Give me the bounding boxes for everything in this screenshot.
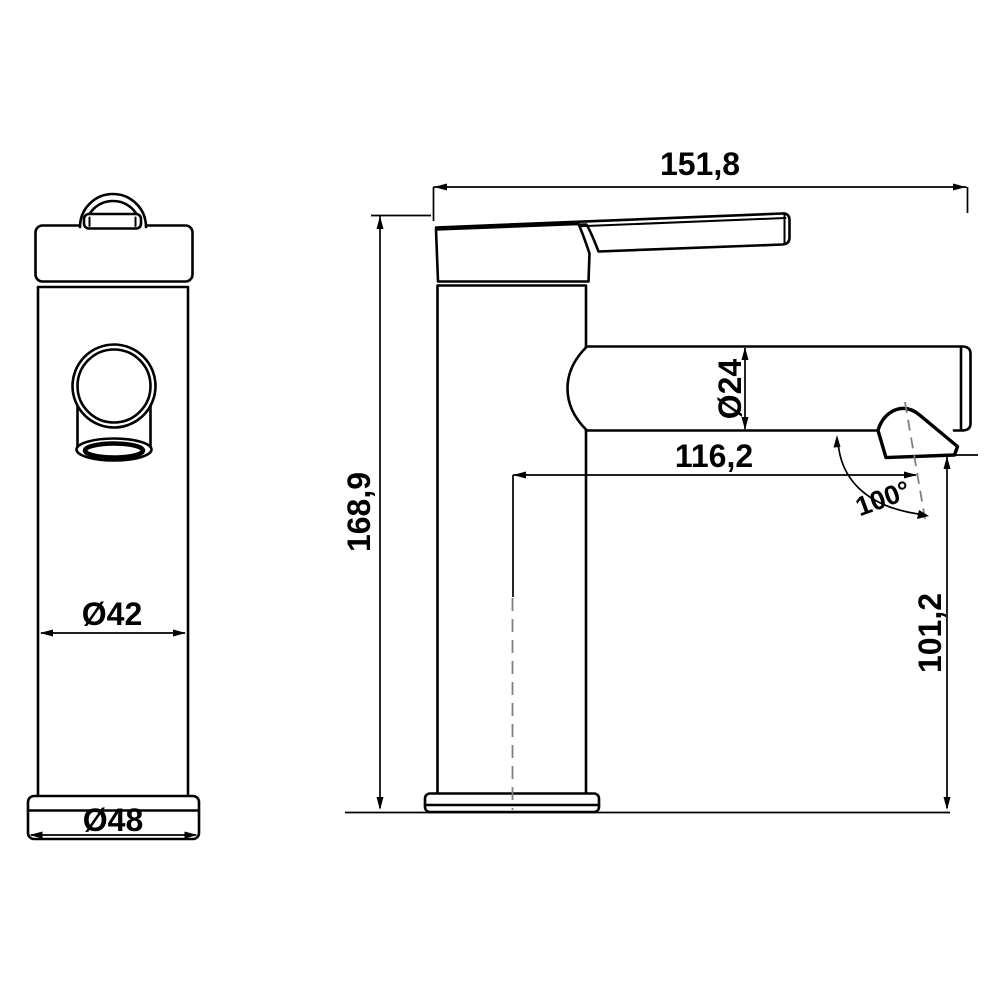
side-aerator bbox=[878, 408, 958, 457]
dim-base-diameter-label: Ø48 bbox=[83, 802, 143, 838]
front-view bbox=[28, 194, 199, 839]
dim-total-width-label: 151,8 bbox=[660, 146, 740, 182]
side-handle-cap bbox=[436, 224, 590, 282]
front-spout-outer-circle bbox=[73, 345, 156, 428]
front-handle-cap bbox=[36, 226, 193, 282]
side-spout-body-fillet bbox=[568, 348, 587, 430]
arrow-angle-arc-top bbox=[834, 435, 841, 448]
side-view bbox=[425, 213, 971, 812]
arrow-body-diameter-left bbox=[40, 630, 53, 637]
dim-total-height-line bbox=[371, 216, 431, 809]
arrow-spout-diameter-top bbox=[742, 347, 749, 360]
arrow-body-diameter-right bbox=[173, 630, 186, 637]
front-aerator-inner-ellipse bbox=[85, 444, 143, 458]
dim-spout-diameter-label: Ø24 bbox=[712, 359, 748, 420]
dim-outlet-angle-label: 100° bbox=[852, 475, 915, 522]
arrow-spout-reach-right bbox=[904, 472, 917, 479]
dim-body-diameter-label: Ø42 bbox=[82, 596, 142, 632]
arrow-outlet-height-top bbox=[944, 456, 951, 469]
arrow-outlet-height-bottom bbox=[944, 797, 951, 810]
arrow-total-width-left bbox=[434, 184, 447, 191]
arrow-spout-reach-left bbox=[513, 472, 526, 479]
dim-outlet-height-label: 101,2 bbox=[912, 593, 948, 673]
arrow-total-height-bottom bbox=[377, 797, 384, 810]
dim-total-height-label: 168,9 bbox=[341, 472, 377, 552]
arrow-total-width-right bbox=[953, 184, 966, 191]
technical-drawing-canvas: 151,8 168,9 Ø24 116,2 100° 101,2 Ø42 Ø48 bbox=[0, 0, 1000, 1000]
front-lever-knob bbox=[84, 214, 141, 229]
faucet-dimension-drawing: 151,8 168,9 Ø24 116,2 100° 101,2 Ø42 Ø48 bbox=[0, 0, 1000, 1000]
side-body bbox=[438, 286, 587, 795]
dim-spout-reach-label: 116,2 bbox=[675, 438, 753, 474]
arrow-total-height-top bbox=[377, 216, 384, 229]
